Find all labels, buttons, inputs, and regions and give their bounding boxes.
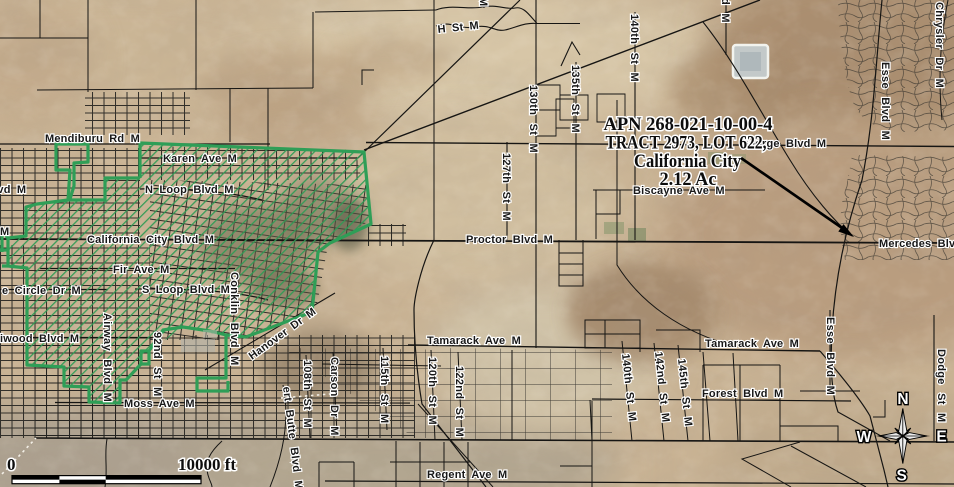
svg-text:Forest Blvd M: Forest Blvd M xyxy=(702,388,783,400)
svg-text:S Loop Blvd M: S Loop Blvd M xyxy=(142,284,230,296)
svg-text:Moss Ave M: Moss Ave M xyxy=(124,398,195,410)
svg-text:127th St M: 127th St M xyxy=(500,153,512,221)
svg-text:135th St M: 135th St M xyxy=(569,65,581,133)
svg-text:California City Blvd M: California City Blvd M xyxy=(87,234,214,246)
svg-text:Esse Blvd M: Esse Blvd M xyxy=(879,62,891,140)
svg-text:115th St M: 115th St M xyxy=(378,356,390,423)
svg-text:10000 ft: 10000 ft xyxy=(178,455,236,474)
svg-text:108th St M: 108th St M xyxy=(301,360,313,428)
svg-text:W: W xyxy=(857,429,872,446)
svg-text:M: M xyxy=(477,0,489,6)
svg-text:122nd St M: 122nd St M xyxy=(453,366,465,437)
svg-text:Chrysler Dr M: Chrysler Dr M xyxy=(933,2,945,88)
svg-text:Airway Blvd M: Airway Blvd M xyxy=(101,313,113,402)
svg-text:Blvd M: Blvd M xyxy=(0,184,26,196)
svg-text:Karen Ave M: Karen Ave M xyxy=(163,153,237,165)
svg-text:Proctor Blvd M: Proctor Blvd M xyxy=(466,234,553,246)
svg-text:N Loop Blvd M: N Loop Blvd M xyxy=(145,184,234,196)
svg-text:Conklin Blvd M: Conklin Blvd M xyxy=(228,272,240,366)
svg-text:Regent Ave M: Regent Ave M xyxy=(427,469,507,481)
svg-text:S: S xyxy=(897,468,907,485)
svg-text:iwood Blvd M: iwood Blvd M xyxy=(0,333,79,345)
svg-text:Tamarack Ave M: Tamarack Ave M xyxy=(705,338,799,350)
svg-text:Tamarack Ave M: Tamarack Ave M xyxy=(427,335,521,347)
svg-text:92nd St M: 92nd St M xyxy=(151,332,163,397)
svg-text:e Circle Dr M: e Circle Dr M xyxy=(2,285,81,297)
svg-text:Mendiburu Rd M: Mendiburu Rd M xyxy=(45,133,140,145)
svg-text:2.12 Ac: 2.12 Ac xyxy=(660,169,717,190)
svg-text:Fir Ave M: Fir Ave M xyxy=(113,264,170,276)
svg-text:E: E xyxy=(936,429,946,446)
svg-text:Blvd M: Blvd M xyxy=(719,0,731,23)
svg-text:M: M xyxy=(0,226,9,238)
svg-text:130th St M: 130th St M xyxy=(527,85,539,153)
svg-text:N: N xyxy=(897,391,908,408)
svg-text:Dodge St M: Dodge St M xyxy=(935,349,947,423)
svg-text:Esse Blvd M: Esse Blvd M xyxy=(824,317,836,395)
svg-text:120th St M: 120th St M xyxy=(426,357,438,425)
svg-text:0: 0 xyxy=(7,455,16,474)
svg-text:140th St M: 140th St M xyxy=(628,14,640,82)
svg-text:Mercedes Blv: Mercedes Blv xyxy=(879,238,954,250)
svg-text:Carson Dr M: Carson Dr M xyxy=(328,357,340,436)
